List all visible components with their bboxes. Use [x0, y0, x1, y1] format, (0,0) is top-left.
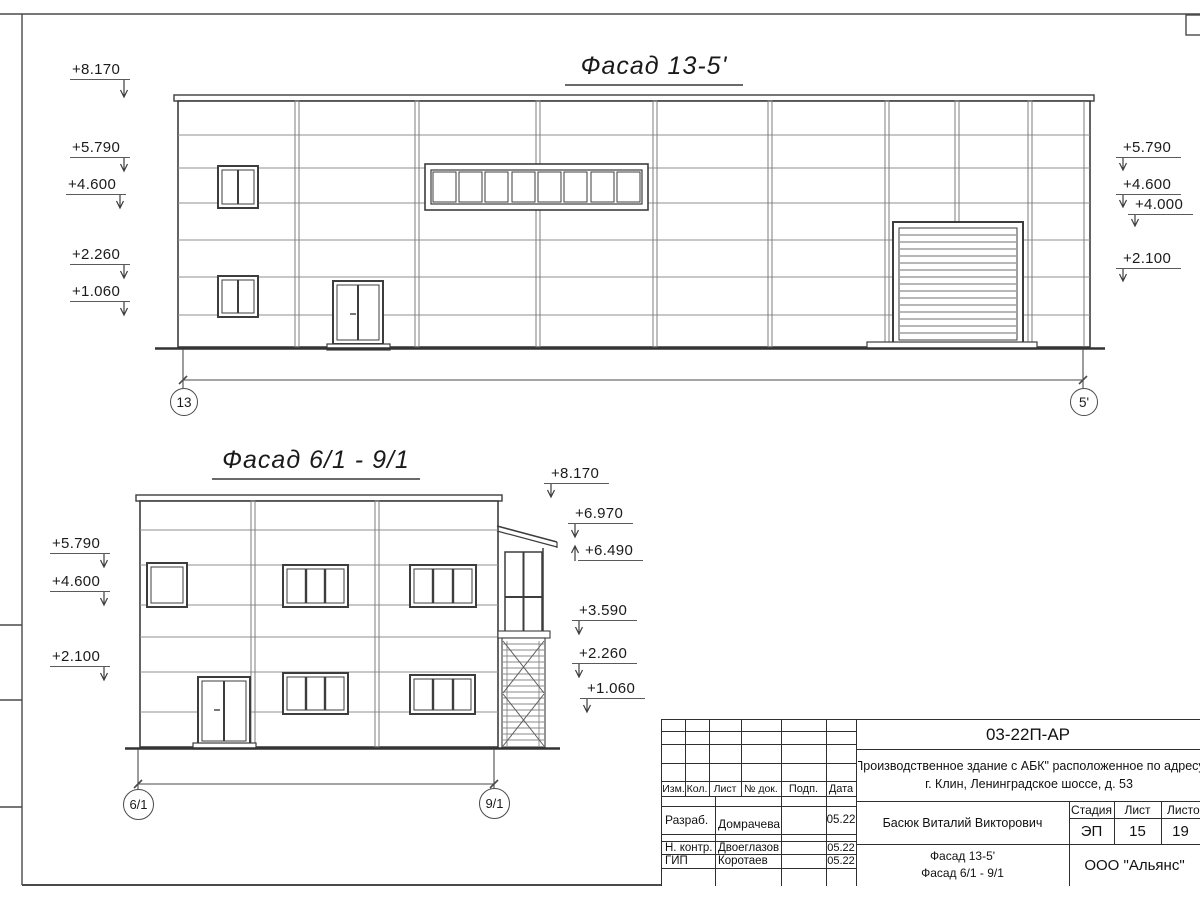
- elevation-mark: +1.060: [580, 680, 645, 699]
- elevation-mark: +5.790: [1116, 139, 1181, 158]
- elevation-mark: +6.970: [568, 505, 633, 524]
- drawing-name-line2: Фасад 6/1 - 9/1: [921, 865, 1004, 882]
- window-1pane: [147, 563, 187, 607]
- row-role: ГИП: [665, 854, 717, 868]
- elevation-mark: +5.790: [50, 535, 110, 554]
- elevation-mark: +1.060: [70, 283, 130, 302]
- drawing-name-line1: Фасад 13-5': [930, 848, 995, 865]
- ribbon-window: [425, 164, 648, 210]
- roller-gate: [867, 222, 1037, 349]
- row-date: 05.22: [826, 854, 856, 868]
- supervisor-name: Басюк Виталий Викторович: [856, 801, 1069, 844]
- sheets-label: Листов: [1167, 801, 1200, 818]
- stair-tower: [497, 526, 557, 747]
- col-header-kol: Кол.: [685, 781, 709, 796]
- row-date: 05.22: [826, 841, 856, 854]
- drawing-sheet: Фасад 13-5' Фасад 6/1 - 9/1 +8.170 +5.79…: [0, 0, 1200, 900]
- facade-13-5-drawing: [117, 80, 1139, 388]
- stage-value: ЭП: [1069, 818, 1114, 844]
- window-3pane: [410, 565, 476, 607]
- elevation-mark: +4.600: [66, 176, 126, 195]
- axis-bubble-6-1: 6/1: [123, 789, 154, 820]
- elevation-mark: +2.100: [1116, 250, 1181, 269]
- elevation-mark: +4.600: [50, 573, 110, 592]
- company-name: ООО "Альянс": [1069, 844, 1200, 886]
- elevation-mark: +4.600: [1116, 176, 1181, 195]
- row-role: Н. контр.: [665, 841, 717, 854]
- row-role: Разраб.: [665, 806, 715, 834]
- col-header-izm: Изм.: [662, 781, 685, 796]
- row-name: Коротаев: [718, 854, 782, 868]
- axis-bubble-9-1: 9/1: [479, 788, 510, 819]
- project-name-line2: г. Клин, Ленинградское шоссе, д. 53: [925, 775, 1133, 793]
- sheet-label: Лист: [1114, 801, 1161, 818]
- elevation-mark: +2.100: [50, 648, 110, 667]
- title-block: Изм. Кол. Лист № док. Подп. Дата Разраб.…: [661, 719, 1200, 886]
- col-header-data: Дата: [826, 781, 856, 796]
- axis-bubble-13: 13: [170, 388, 198, 416]
- elevation-mark: +2.260: [70, 246, 130, 265]
- window-2pane: [218, 166, 258, 208]
- facade2-title: Фасад 6/1 - 9/1: [212, 446, 420, 480]
- window-3pane: [283, 673, 348, 714]
- row-date: 05.22: [826, 806, 856, 834]
- stage-label: Стадия: [1069, 801, 1114, 818]
- project-name-line1: "Производственное здание с АБК" располож…: [858, 757, 1200, 775]
- sheets-total: 19: [1161, 818, 1200, 844]
- col-header-podp: Подп.: [781, 781, 826, 796]
- double-door: [193, 677, 256, 749]
- elevation-mark: +8.170: [70, 61, 130, 80]
- facade1-title: Фасад 13-5': [565, 52, 743, 86]
- elevation-mark: +8.170: [544, 465, 609, 484]
- elevation-mark: +6.490: [578, 542, 643, 561]
- doc-number: 03-22П-АР: [856, 720, 1200, 749]
- sheet-number: 15: [1114, 818, 1161, 844]
- facade-6-1-9-1-drawing: [101, 484, 591, 789]
- col-header-doc: № док.: [741, 781, 781, 796]
- elevation-mark: +3.590: [572, 602, 637, 621]
- elevation-mark: +5.790: [70, 139, 130, 158]
- double-door: [327, 281, 390, 350]
- window-3pane: [283, 565, 348, 607]
- elevation-mark: +2.260: [572, 645, 637, 664]
- row-name: Двоеглазов: [718, 841, 782, 854]
- elevation-mark: +4.000: [1128, 196, 1193, 215]
- axis-bubble-5: 5': [1070, 388, 1098, 416]
- window-3pane: [410, 675, 475, 714]
- row-name: Домрачева: [718, 810, 780, 838]
- window-2pane: [218, 276, 258, 317]
- col-header-list: Лист: [709, 781, 741, 796]
